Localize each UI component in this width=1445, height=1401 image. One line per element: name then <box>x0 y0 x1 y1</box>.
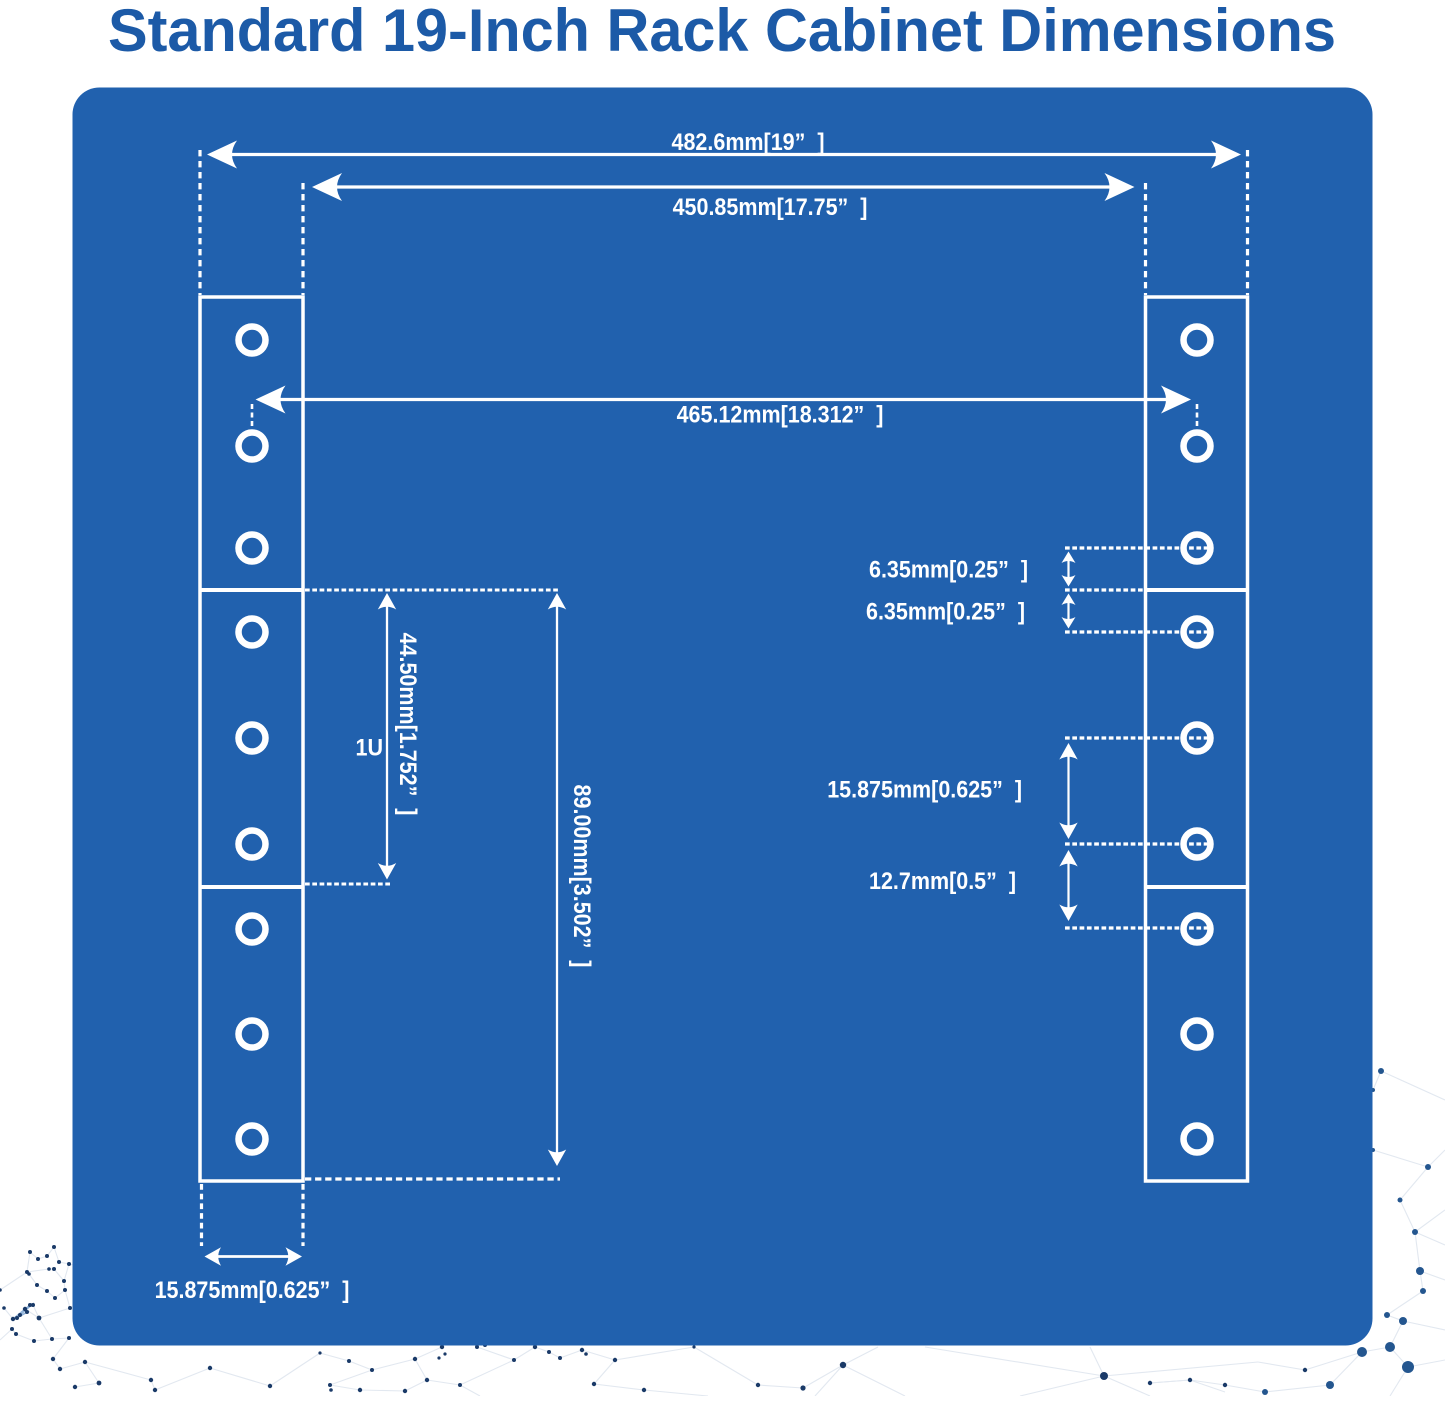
svg-text:Standard 19-Inch Rack Cabinet: Standard 19-Inch Rack Cabinet Dimensions <box>108 0 1336 64</box>
svg-text:450.85mm[17.75” ]: 450.85mm[17.75” ] <box>673 194 868 221</box>
svg-text:44.50mm[1.752” ]: 44.50mm[1.752” ] <box>394 633 421 816</box>
svg-text:482.6mm[19” ]: 482.6mm[19” ] <box>672 129 825 156</box>
svg-text:89.00mm[3.502” ]: 89.00mm[3.502” ] <box>568 785 595 968</box>
svg-text:1U: 1U <box>356 735 384 762</box>
svg-text:12.7mm[0.5” ]: 12.7mm[0.5” ] <box>869 868 1016 895</box>
svg-text:6.35mm[0.25” ]: 6.35mm[0.25” ] <box>866 599 1025 626</box>
svg-text:6.35mm[0.25” ]: 6.35mm[0.25” ] <box>869 557 1028 584</box>
svg-text:15.875mm[0.625” ]: 15.875mm[0.625” ] <box>827 777 1022 804</box>
svg-text:15.875mm[0.625” ]: 15.875mm[0.625” ] <box>155 1277 350 1304</box>
svg-text:465.12mm[18.312” ]: 465.12mm[18.312” ] <box>677 402 884 429</box>
